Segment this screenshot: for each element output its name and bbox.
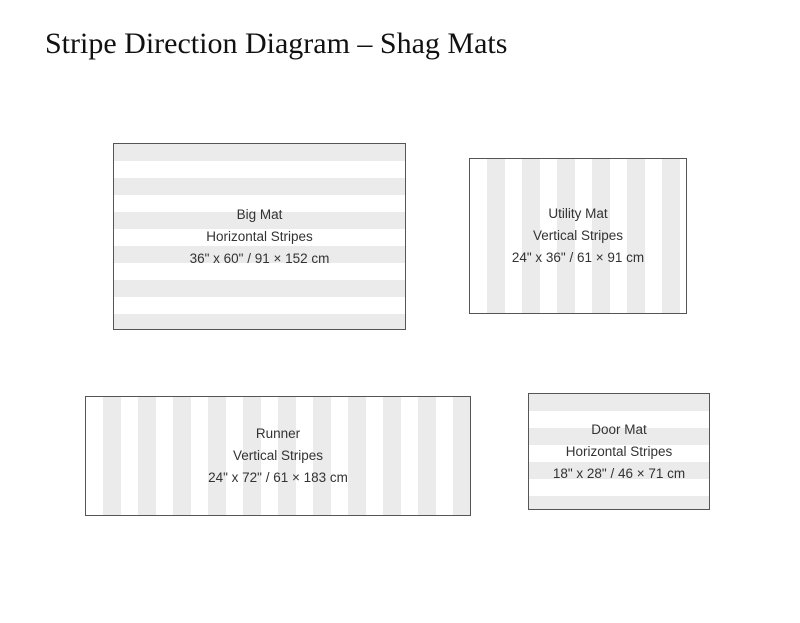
mat-dimensions: 18" x 28" / 46 × 71 cm bbox=[553, 463, 685, 485]
mat-stripe-direction: Vertical Stripes bbox=[533, 225, 623, 247]
mat-stripe-direction: Vertical Stripes bbox=[233, 445, 323, 467]
mat-dimensions: 36" x 60" / 91 × 152 cm bbox=[190, 248, 330, 270]
mat-runner: Runner Vertical Stripes 24" x 72" / 61 ×… bbox=[85, 396, 471, 516]
mat-dimensions: 24" x 36" / 61 × 91 cm bbox=[512, 247, 644, 269]
mat-utility-mat: Utility Mat Vertical Stripes 24" x 36" /… bbox=[469, 158, 687, 314]
mat-stripe-direction: Horizontal Stripes bbox=[206, 226, 313, 248]
mat-dimensions: 24" x 72" / 61 × 183 cm bbox=[208, 467, 348, 489]
mat-big-mat: Big Mat Horizontal Stripes 36" x 60" / 9… bbox=[113, 143, 406, 330]
mat-name: Utility Mat bbox=[548, 203, 607, 225]
diagram-canvas: Stripe Direction Diagram – Shag Mats Big… bbox=[0, 0, 800, 623]
mat-stripe-direction: Horizontal Stripes bbox=[566, 441, 673, 463]
mat-name: Big Mat bbox=[237, 204, 283, 226]
mat-name: Door Mat bbox=[591, 419, 647, 441]
page-title: Stripe Direction Diagram – Shag Mats bbox=[45, 27, 507, 60]
mat-door-mat: Door Mat Horizontal Stripes 18" x 28" / … bbox=[528, 393, 710, 510]
mat-name: Runner bbox=[256, 423, 300, 445]
